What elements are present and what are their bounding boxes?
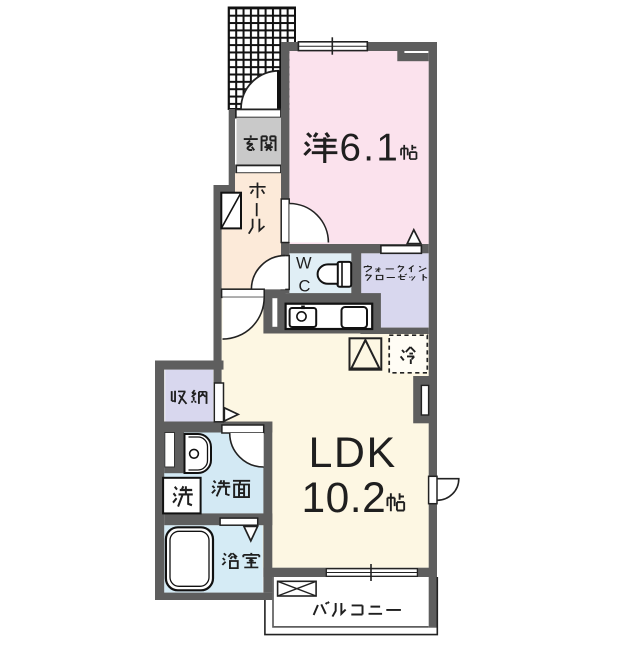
svg-text:C: C (299, 278, 311, 296)
svg-text:W: W (296, 255, 312, 273)
svg-text:LDK: LDK (309, 429, 397, 477)
svg-text:6.1: 6.1 (340, 127, 401, 170)
svg-text:10.2: 10.2 (302, 475, 387, 522)
